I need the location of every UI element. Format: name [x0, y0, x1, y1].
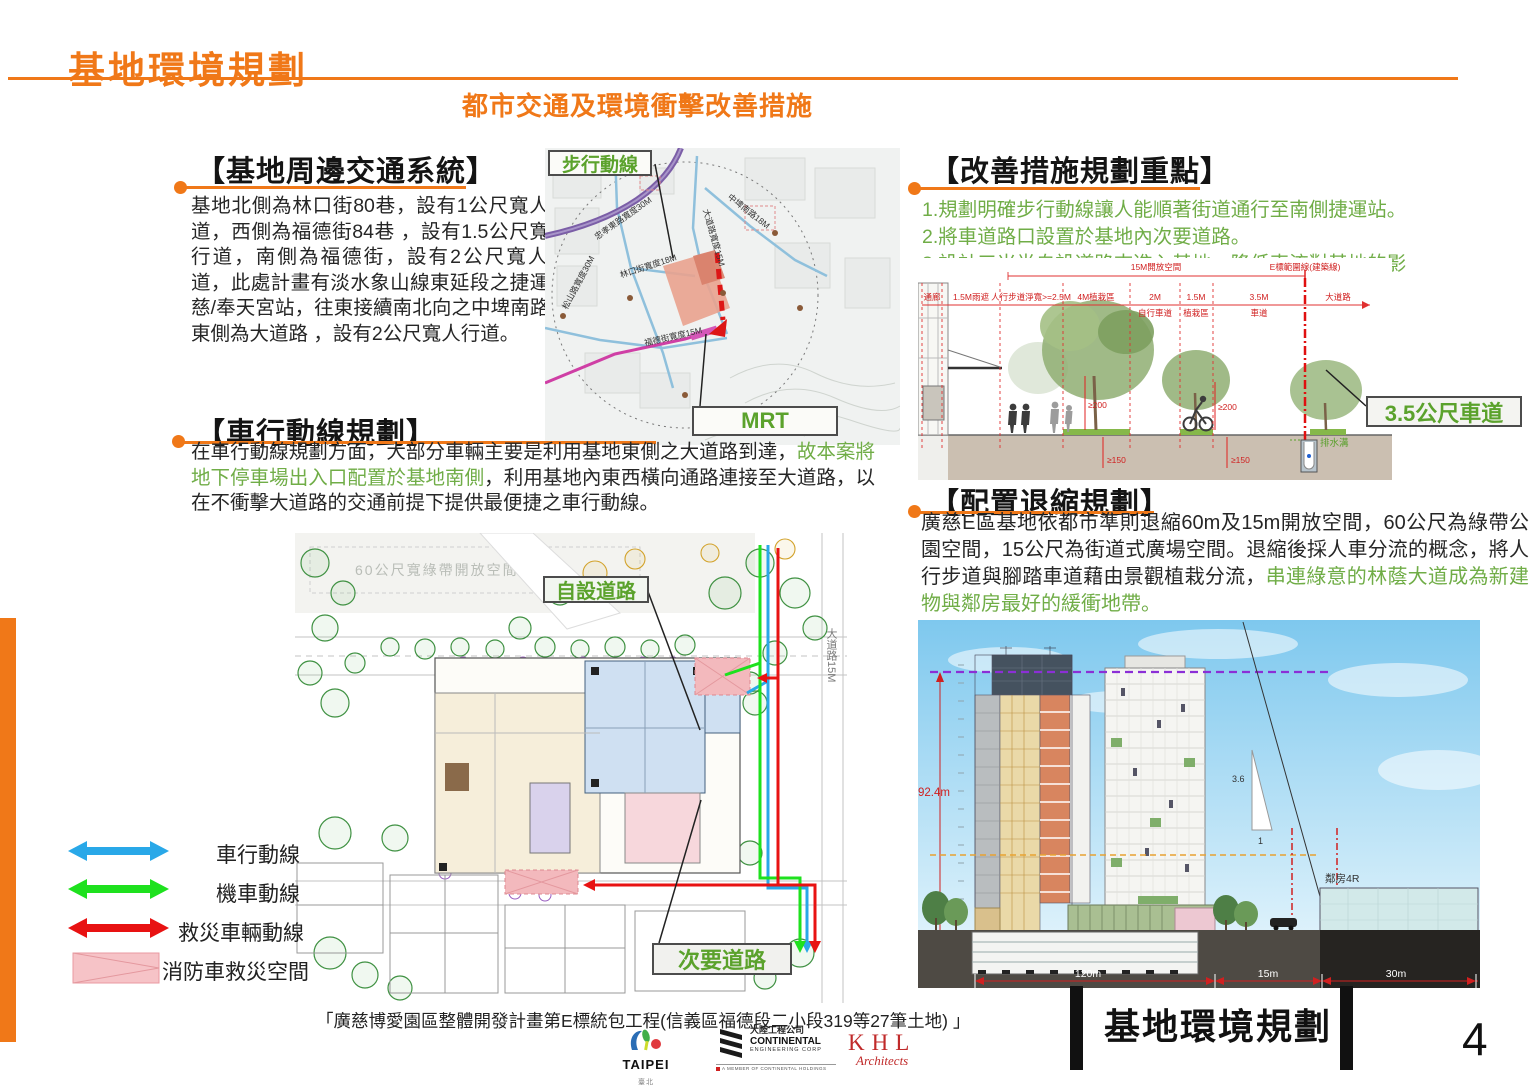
cs-dim: 自行車道 [1138, 308, 1173, 318]
cs-dim: 植栽區 [1183, 308, 1209, 318]
cs-dim: 2M [1149, 292, 1161, 302]
secondary-road-label: 次要道路 [652, 943, 792, 975]
legend-fire-space-swatch [72, 952, 160, 984]
neighbor-label: 鄰房4R [1325, 872, 1360, 885]
left-accent-bar [0, 618, 16, 1042]
cs-height: ≥150 [1231, 455, 1250, 465]
section-heading-improvement: 【改善措施規劃重點】 [930, 148, 1230, 190]
traffic-paragraph: 基地北側為林口街80巷，設有1公尺寬人行道，西側為福德街84巷 ，設有1.5公尺… [191, 194, 569, 347]
legend-arrow-rescue [66, 915, 171, 941]
street-cross-section: 15M開放空間 E標範圍線(建築線) 通廊 1.5M雨遮 人行步道淨寬>=2.5… [918, 258, 1392, 480]
khl-logo-sub: Architects [848, 1053, 916, 1069]
mrt-label-text: MRT [741, 408, 789, 434]
continental-logo: 大陸工程公司 CONTINENTAL ENGINEERING CORP A ME… [716, 1026, 836, 1071]
page-number: 4 [1462, 1012, 1488, 1066]
cs-dim: 大道路 [1325, 292, 1351, 302]
cs-dim: 車道 [1250, 308, 1268, 318]
park-note: 60公尺寬綠帶開放空間 [355, 562, 519, 578]
taipei-logo-sub: 臺北 [638, 1079, 654, 1086]
lane-callout: 3.5公尺車道 [1366, 396, 1522, 427]
context-map: 忠孝東路寬度30M 中埤南路18M 大道路寬度15M 林口街寬度18M 松山路寬… [545, 148, 900, 445]
cs-e-line-label: E標範圍線(建築線) [1270, 262, 1341, 272]
improvement-item: 1.規劃明確步行動線讓人能順著街道通行至南側捷運站。 [922, 197, 1422, 224]
cs-dim: 4M植栽區 [1077, 292, 1114, 302]
caption-post-left [1070, 986, 1083, 1070]
continental-member: A MEMBER OF CONTINENTAL HOLDINGS [722, 1066, 827, 1071]
cs-height: ≥200 [1218, 402, 1237, 412]
vehicle-paragraph: 在車行動線規劃方面，大部分車輛主要是利用基地東側之大道路到達，故本案將地下停車場… [191, 440, 875, 517]
cs-dim: 3.5M [1250, 292, 1269, 302]
secondary-road-label-text: 次要道路 [678, 943, 766, 975]
cs-dim: 通廊 [923, 292, 941, 302]
improvement-item: 2.將車道路口設置於基地內次要道路。 [922, 224, 1422, 251]
street-right-label: 大道路15M [825, 627, 838, 683]
slope-vertical: 3.6 [1232, 774, 1245, 784]
slope-horizontal: 1 [1258, 836, 1263, 846]
dim-120m: 120m [1075, 968, 1102, 980]
continental-en: CONTINENTAL [750, 1036, 822, 1047]
building-footprint [435, 658, 740, 873]
cs-dim: 1.5M雨遮 [953, 292, 989, 302]
legend-arrow-moto [66, 876, 171, 902]
section-underline [184, 186, 466, 189]
legend-label-fire: 消防車救災空間 [162, 956, 309, 986]
walk-route-label-text: 步行動線 [562, 150, 638, 177]
cs-dim: 人行步道淨寬>=2.5M [991, 292, 1071, 302]
building-b [1105, 656, 1205, 907]
legend-arrow-car [66, 838, 171, 864]
drain-label: 排水溝 [1320, 437, 1349, 449]
walk-route-label: 步行動線 [548, 150, 652, 176]
taipei-logo-icon [626, 1028, 666, 1052]
self-road-label: 自設道路 [543, 576, 649, 603]
section-heading-traffic: 【基地周邊交通系統】 [196, 148, 496, 190]
page-subtitle: 都市交通及環境衝擊改善措施 [462, 86, 813, 123]
site-elevation: 92.4m [918, 620, 1480, 988]
dim-15m: 15m [1258, 968, 1279, 980]
title-rule [8, 77, 1458, 80]
taipei-logo-text: TAIPEI [623, 1057, 670, 1072]
legend-label-rescue: 救災車輛動線 [178, 917, 304, 947]
continental-en2: ENGINEERING CORP [750, 1047, 822, 1053]
cs-height: ≥200 [1088, 400, 1107, 410]
legend-label-moto: 機車動線 [216, 878, 300, 908]
dim-30m: 30m [1386, 968, 1407, 980]
self-road-label-text: 自設道路 [556, 575, 636, 604]
lane-callout-text: 3.5公尺車道 [1385, 396, 1504, 428]
cs-dim: 1.5M [1187, 292, 1206, 302]
continental-cn: 大陸工程公司 [750, 1026, 822, 1036]
khl-logo: KHL Architects [848, 1030, 916, 1069]
fire-space-south [505, 870, 578, 894]
height-label: 92.4m [918, 787, 950, 799]
mrt-label: MRT [692, 406, 838, 436]
continental-logo-icon [716, 1026, 746, 1062]
cs-height: ≥150 [1107, 455, 1126, 465]
vehicle-text-black: 在車行動線規劃方面，大部分車輛主要是利用基地東側之大道路到達， [191, 441, 797, 463]
caption-post-right [1340, 986, 1353, 1070]
elevation-caption: 基地環境規劃 [1103, 998, 1333, 1050]
taipei-logo: TAIPEI臺北 [620, 1028, 672, 1086]
cs-open-space-label: 15M開放空間 [1131, 262, 1182, 272]
fire-space-east [695, 658, 750, 695]
legend-label-car: 車行動線 [216, 839, 300, 869]
slide: 基地環境規劃 都市交通及環境衝擊改善措施 【基地周邊交通系統】 基地北側為林口街… [0, 0, 1536, 1086]
section-underline [916, 187, 1200, 190]
page-title: 基地環境規劃 [68, 40, 308, 94]
setback-paragraph: 廣慈E區基地依都市準則退縮60m及15m開放空間，60公尺為綠帶公園空間，15公… [921, 510, 1529, 618]
